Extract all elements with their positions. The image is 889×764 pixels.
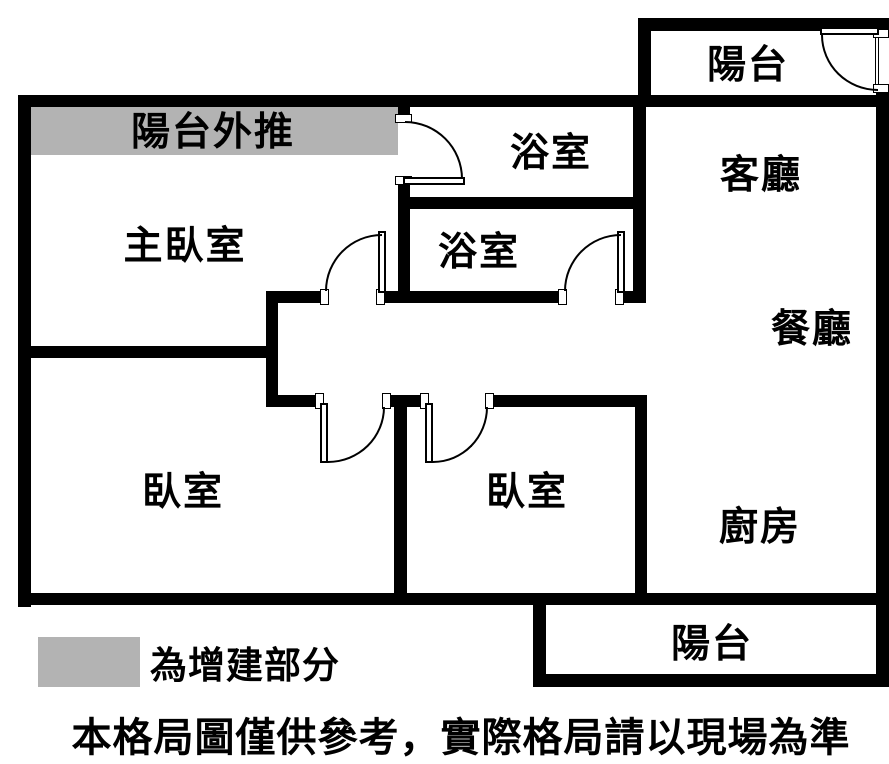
hall-bottom-wall-left <box>266 395 320 407</box>
legend-swatch <box>38 637 140 687</box>
bedroom-divider-wall <box>394 395 407 605</box>
room-label-balcony-top: 陽台 <box>707 34 789 90</box>
room-label-master-bedroom: 主臥室 <box>123 215 246 271</box>
master-door-swing-arc <box>325 234 382 291</box>
room-label-living-room: 客廳 <box>720 144 802 200</box>
middle-bedroom-door-panel <box>425 403 433 463</box>
lower-bathroom-door-swing-arc <box>564 234 621 291</box>
room-label-bedroom-middle: 臥室 <box>486 461 568 517</box>
master-bedroom-bottom-wall <box>18 346 278 358</box>
disclaimer-text: 本格局圖僅供參考，實際格局請以現場為準 <box>72 705 851 763</box>
upper-bathroom-door-swing-arc <box>405 121 463 179</box>
bathroom-right-wall <box>633 95 646 303</box>
lower-bathroom-door-jamb-left <box>558 289 567 305</box>
middle-bedroom-door-swing-arc <box>433 407 488 463</box>
outer-wall-bottom <box>18 593 889 605</box>
room-label-kitchen: 廚房 <box>719 496 801 552</box>
bottom-balcony-wall-bottom <box>533 674 889 687</box>
room-label-balcony-bottom: 陽台 <box>671 613 753 669</box>
left-bedroom-door-panel <box>320 403 328 463</box>
floor-plan: 陽台 陽台外推 浴室 客廳 主臥室 浴室 餐廳 臥室 臥室 廚房 陽台 為增建部… <box>0 0 889 764</box>
left-bedroom-door-swing-arc <box>328 407 385 463</box>
hall-top-wall-mid <box>383 291 564 303</box>
room-label-dining-room: 餐廳 <box>771 298 853 354</box>
bathroom-divider-wall <box>398 197 645 209</box>
room-label-extension: 陽台外推 <box>131 101 295 157</box>
legend-label: 為增建部分 <box>150 635 340 689</box>
room-label-bedroom-left: 臥室 <box>142 461 224 517</box>
hall-bottom-wall-right <box>493 395 647 407</box>
balcony-door-panel <box>820 27 879 35</box>
kitchen-left-wall <box>635 395 647 593</box>
room-label-bathroom-upper: 浴室 <box>510 122 592 178</box>
room-label-bathroom-lower: 浴室 <box>438 221 520 277</box>
outer-wall-right <box>876 95 889 687</box>
master-door-jamb-left <box>320 289 329 305</box>
balcony-door-swing-arc <box>821 35 878 91</box>
